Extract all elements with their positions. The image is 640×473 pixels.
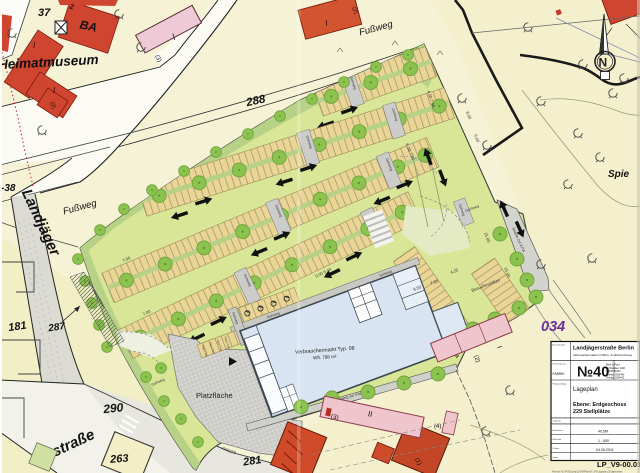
svg-text:034: 034 bbox=[541, 319, 565, 335]
svg-text:Maßstab: Maßstab bbox=[553, 438, 562, 441]
svg-text:1 : 500: 1 : 500 bbox=[598, 439, 609, 443]
svg-text:Datum: Datum bbox=[553, 447, 560, 450]
svg-text:229 Stellplätze: 229 Stellplätze bbox=[573, 409, 610, 415]
svg-text:Legende: Legende bbox=[553, 421, 562, 423]
svg-text:37: 37 bbox=[38, 7, 51, 19]
svg-text:Verbrauchermarkt mit Büro- & W: Verbrauchermarkt mit Büro- & Wohnnutzung bbox=[573, 353, 632, 357]
svg-text:181: 181 bbox=[8, 320, 28, 334]
svg-text:04.05.2011: 04.05.2011 bbox=[596, 448, 614, 452]
svg-text:Planverfasser: Planverfasser bbox=[553, 363, 567, 366]
svg-text:290: 290 bbox=[102, 400, 125, 416]
svg-text:Landjägerstraße Berlin: Landjägerstraße Berlin bbox=[573, 346, 635, 352]
svg-text:263: 263 bbox=[109, 453, 129, 466]
svg-text:Platzfläche: Platzfläche bbox=[196, 391, 233, 400]
svg-text:FABRIK: FABRIK bbox=[553, 372, 566, 376]
svg-text:Spie: Spie bbox=[608, 169, 630, 180]
svg-text:Bauvorhaben: Bauvorhaben bbox=[553, 344, 567, 347]
svg-text:Ebene: Erdgeschoss: Ebene: Erdgeschoss bbox=[573, 402, 626, 408]
svg-text:-38: -38 bbox=[1, 183, 16, 194]
svg-text:N: N bbox=[599, 56, 608, 70]
svg-text:Plangrundlage: Plangrundlage bbox=[553, 383, 568, 386]
svg-text:№40: №40 bbox=[577, 365, 609, 381]
svg-text:Lageplan: Lageplan bbox=[573, 387, 598, 393]
svg-text:LP_V9-00.01: LP_V9-00.01 bbox=[597, 460, 640, 469]
svg-text:Bearbeitet: Bearbeitet bbox=[553, 429, 563, 432]
svg-text:40,5M: 40,5M bbox=[598, 430, 608, 434]
svg-text:Telefax 030/442: Telefax 030/442 bbox=[606, 376, 625, 380]
svg-text:Index: Index bbox=[553, 457, 559, 459]
